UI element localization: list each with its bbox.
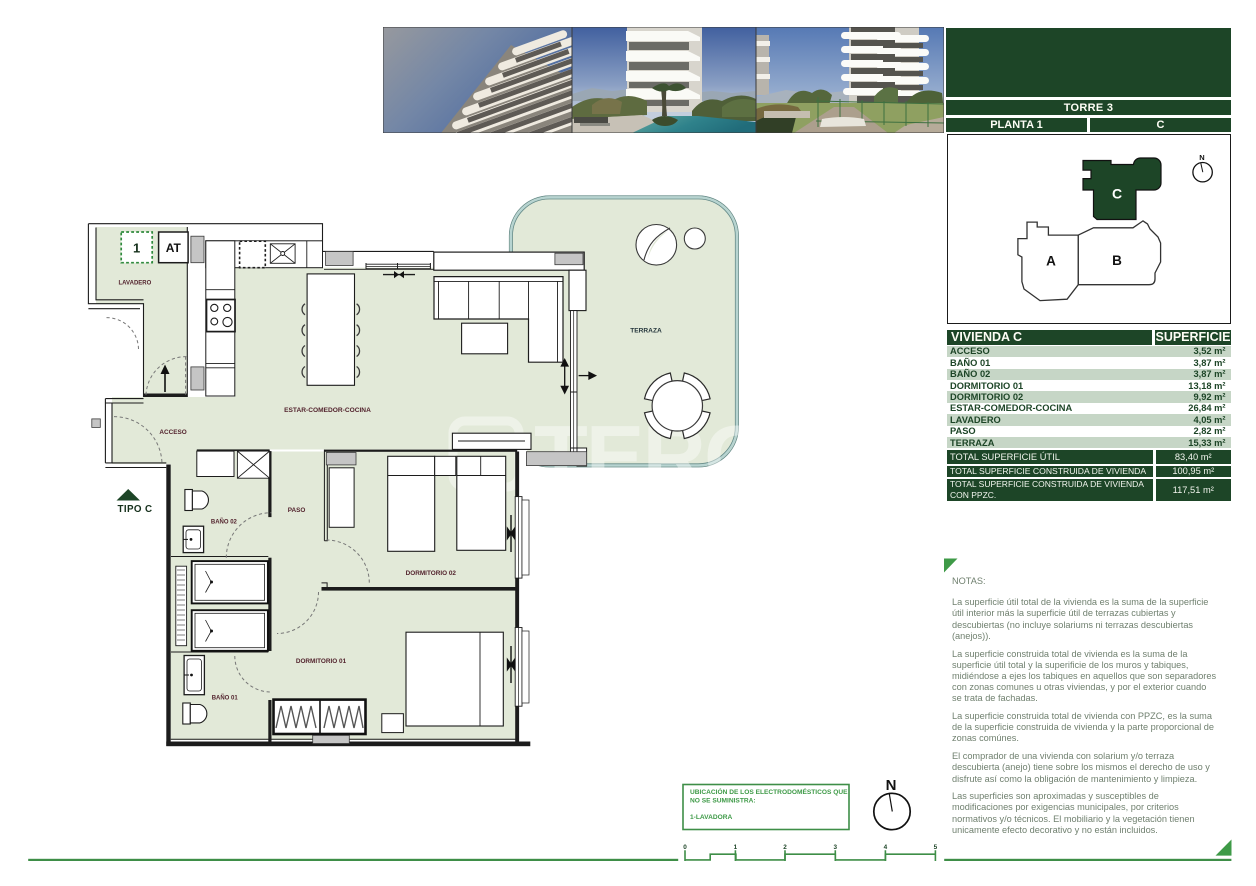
svg-text:LAVADERO: LAVADERO <box>119 281 152 287</box>
svg-text:N: N <box>886 777 897 794</box>
svg-text:5: 5 <box>934 844 938 851</box>
svg-text:1: 1 <box>734 844 738 851</box>
svg-text:B: B <box>1112 253 1122 268</box>
svg-text:AT: AT <box>166 241 182 255</box>
svg-text:A: A <box>1046 254 1056 269</box>
svg-text:DORMITORIO 02: DORMITORIO 02 <box>406 570 457 577</box>
svg-text:PASO: PASO <box>288 507 306 514</box>
svg-text:DORMITORIO 01: DORMITORIO 01 <box>296 658 347 665</box>
svg-text:UBICACIÓN DE LOS ELECTRODOMÉST: UBICACIÓN DE LOS ELECTRODOMÉSTICOS QUE <box>690 787 848 796</box>
svg-text:ESTAR-COMEDOR-COCINA: ESTAR-COMEDOR-COCINA <box>284 407 371 414</box>
svg-text:TERRAZA: TERRAZA <box>630 327 662 334</box>
svg-text:0: 0 <box>683 844 687 851</box>
svg-text:N: N <box>1199 153 1204 162</box>
svg-text:BAÑO 01: BAÑO 01 <box>212 695 239 702</box>
svg-text:NO SE SUMINISTRA:: NO SE SUMINISTRA: <box>690 798 756 805</box>
svg-text:BAÑO 02: BAÑO 02 <box>211 519 238 526</box>
svg-text:ACCESO: ACCESO <box>159 429 186 436</box>
svg-text:1-LAVADORA: 1-LAVADORA <box>690 814 732 821</box>
svg-text:3: 3 <box>834 844 838 851</box>
svg-text:1: 1 <box>133 241 140 256</box>
svg-text:4: 4 <box>884 844 888 851</box>
svg-text:C: C <box>1112 186 1122 202</box>
svg-text:TIPO C: TIPO C <box>117 504 152 515</box>
svg-text:2: 2 <box>783 844 787 851</box>
